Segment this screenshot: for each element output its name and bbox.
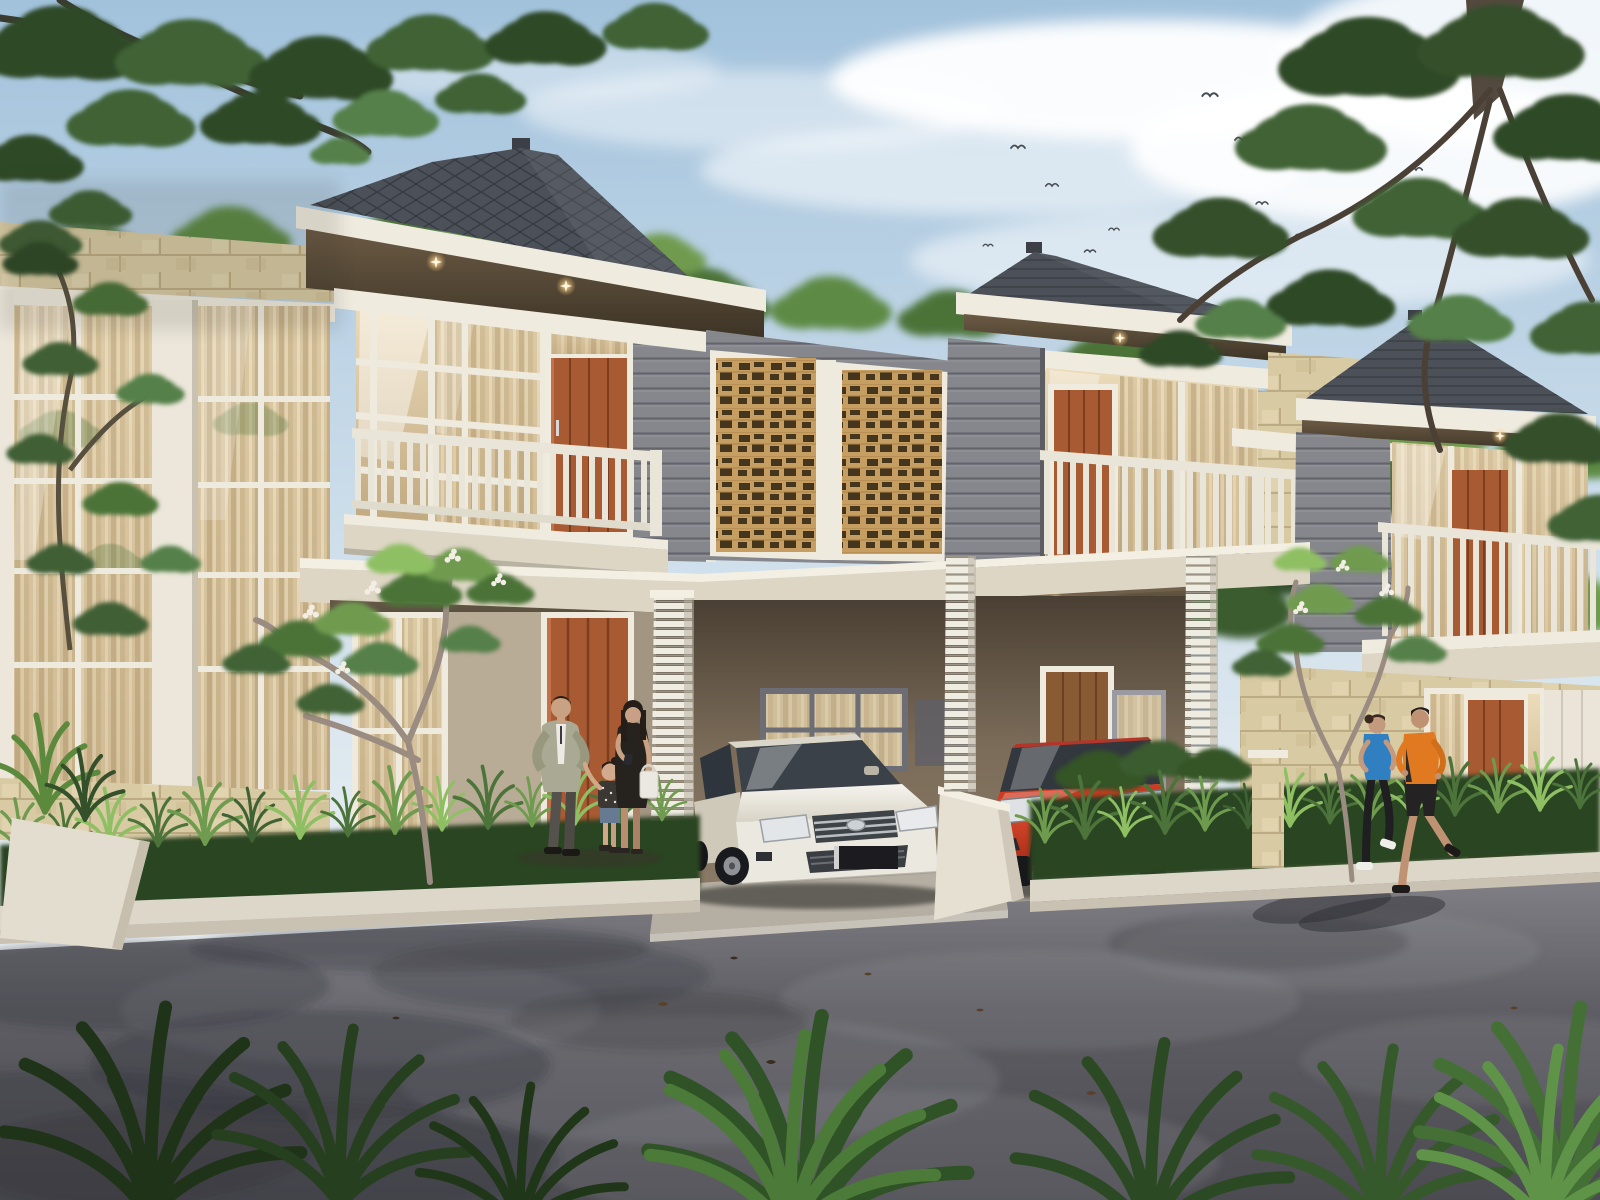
head	[1411, 710, 1429, 728]
lattice-screens	[706, 330, 960, 566]
wall-shadow-wash	[0, 180, 340, 330]
breeze-block-panel-2	[842, 370, 942, 554]
townhouse-scene	[0, 0, 1600, 1200]
eave-downlight	[556, 276, 576, 296]
rendering-canvas	[0, 0, 1600, 1200]
eave-downlight	[426, 252, 446, 272]
front-wheel	[715, 847, 749, 885]
door-handle	[556, 420, 559, 436]
headlight-left	[760, 815, 810, 842]
fog-light	[756, 852, 772, 861]
louvred-pillar-2	[944, 556, 976, 792]
head	[625, 707, 641, 723]
head	[551, 698, 571, 718]
license-plate	[834, 846, 898, 869]
stone-pier	[1252, 756, 1284, 868]
edge-pilaster	[0, 290, 14, 835]
center-mullion	[152, 300, 198, 792]
breeze-block-panel-1	[716, 358, 816, 552]
shopping-bag	[640, 771, 658, 798]
toyota-badge	[847, 820, 865, 831]
side-mirror	[864, 766, 879, 775]
eave-downlight	[1111, 329, 1129, 347]
glass-panel-left-1	[14, 306, 152, 784]
